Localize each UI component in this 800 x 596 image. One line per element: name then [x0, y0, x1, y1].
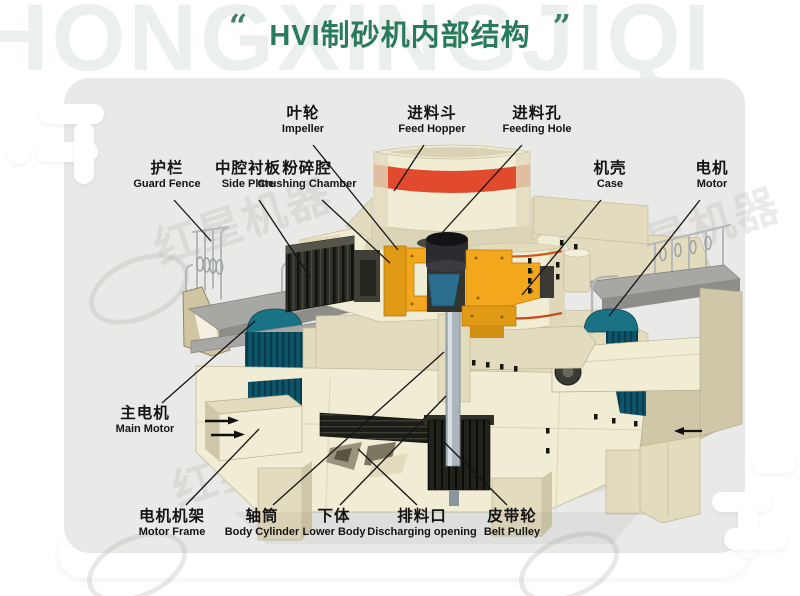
part-label-en: Guard Fence [133, 178, 200, 191]
part-label-impeller: 叶轮Impeller [282, 105, 324, 136]
part-label-feeding-hole: 进料孔Feeding Hole [502, 105, 571, 136]
part-label-cn: 主电机 [116, 405, 175, 423]
part-label-guard-fence: 护栏Guard Fence [133, 160, 200, 191]
corner-decor-pill [724, 528, 788, 550]
part-label-lower-body: 下体Lower Body [303, 508, 366, 539]
page-title: HVI制砂机内部结构 [269, 12, 530, 54]
part-label-en: Case [593, 178, 626, 191]
part-label-cn: 轴筒 [225, 508, 300, 526]
page-header: “ HVI制砂机内部结构 ” [0, 12, 800, 54]
part-label-en: Lower Body [303, 526, 366, 539]
part-label-motor: 电机Motor [695, 160, 728, 191]
part-label-cn: 进料斗 [398, 105, 465, 123]
part-label-en: Motor Frame [139, 526, 206, 539]
part-label-en: Impeller [282, 123, 324, 136]
part-label-cn: 电机机架 [139, 508, 206, 526]
part-label-en: Crushing Chamber [257, 178, 356, 191]
part-label-en: Main Motor [116, 423, 175, 436]
part-label-en: Discharging opening [367, 526, 476, 539]
part-label-motor-frame: 电机机架Motor Frame [139, 508, 206, 539]
part-label-en: Belt Pulley [484, 526, 540, 539]
part-label-cn: 皮带轮 [484, 508, 540, 526]
part-label-cn: 叶轮 [282, 105, 324, 123]
part-label-en: Feeding Hole [502, 123, 571, 136]
part-label-en: Motor [695, 178, 728, 191]
part-label-en: Body Cylinder [225, 526, 300, 539]
part-label-cn: 粉碎腔 [257, 160, 356, 178]
close-quote-icon: ” [553, 12, 571, 41]
corner-decor-pill [752, 455, 796, 473]
labels-layer: 叶轮Impeller进料斗Feed Hopper进料孔Feeding Hole护… [0, 0, 800, 596]
part-label-cn: 护栏 [133, 160, 200, 178]
part-label-main-motor: 主电机Main Motor [116, 405, 175, 436]
part-label-cn: 机壳 [593, 160, 626, 178]
part-label-crushing-chamber: 粉碎腔Crushing Chamber [257, 160, 356, 191]
page: HONGXINGJIQI 红星机器 红星机器 红星机器 红星机器 [0, 0, 800, 596]
part-label-cn: 进料孔 [502, 105, 571, 123]
part-label-en: Feed Hopper [398, 123, 465, 136]
part-label-feed-hopper: 进料斗Feed Hopper [398, 105, 465, 136]
corner-decor-pill [40, 104, 104, 124]
part-label-belt-pulley: 皮带轮Belt Pulley [484, 508, 540, 539]
corner-decor-pill [8, 142, 30, 164]
part-label-case: 机壳Case [593, 160, 626, 191]
part-label-discharging-opening: 排料口Discharging opening [367, 508, 476, 539]
part-label-cn: 下体 [303, 508, 366, 526]
part-label-cn: 电机 [695, 160, 728, 178]
part-label-cn: 排料口 [367, 508, 476, 526]
open-quote-icon: “ [229, 12, 247, 41]
corner-decor-pill [74, 122, 94, 184]
part-label-body-cylinder: 轴筒Body Cylinder [225, 508, 300, 539]
